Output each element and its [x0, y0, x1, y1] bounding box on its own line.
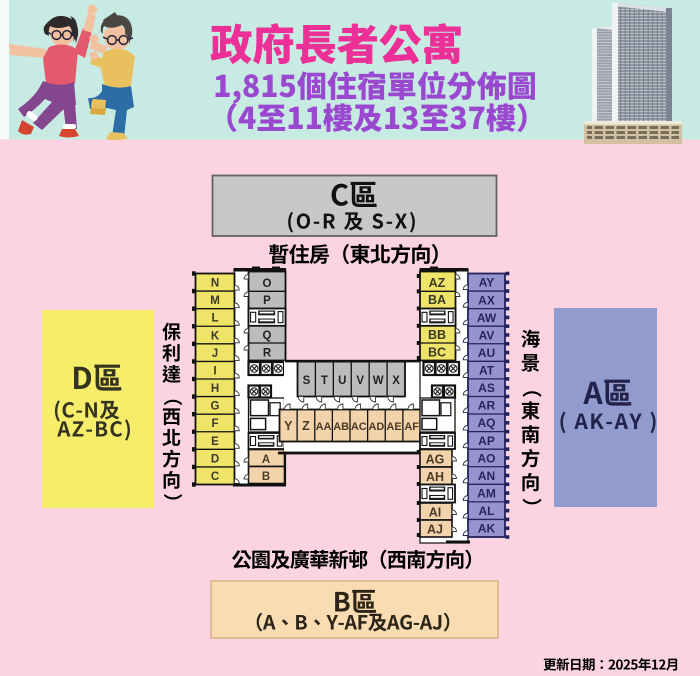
- svg-text:BB: BB: [428, 328, 446, 342]
- svg-text:AQ: AQ: [478, 416, 496, 430]
- svg-text:AV: AV: [479, 328, 495, 342]
- svg-text:K: K: [211, 330, 220, 342]
- svg-text:S: S: [303, 375, 311, 387]
- svg-text:BA: BA: [428, 293, 446, 307]
- svg-text:AS: AS: [478, 381, 495, 395]
- svg-text:E: E: [211, 436, 219, 448]
- svg-text:AO: AO: [478, 451, 496, 465]
- svg-text:AA: AA: [316, 421, 332, 433]
- svg-text:W: W: [373, 375, 384, 387]
- svg-text:U: U: [338, 375, 346, 387]
- svg-text:V: V: [356, 375, 364, 387]
- svg-text:AI: AI: [429, 506, 442, 520]
- svg-text:G: G: [211, 401, 220, 413]
- svg-text:AX: AX: [478, 293, 495, 307]
- svg-text:AY: AY: [479, 276, 495, 290]
- svg-text:Z: Z: [302, 419, 310, 433]
- svg-text:BC: BC: [428, 346, 446, 360]
- svg-text:I: I: [213, 365, 216, 377]
- svg-text:AH: AH: [426, 470, 444, 484]
- svg-text:X: X: [392, 375, 400, 387]
- svg-text:AB: AB: [333, 421, 349, 433]
- svg-text:AL: AL: [479, 504, 495, 518]
- svg-text:R: R: [263, 348, 272, 360]
- svg-text:M: M: [210, 295, 220, 307]
- svg-text:L: L: [211, 313, 218, 325]
- svg-text:AD: AD: [368, 421, 384, 433]
- svg-text:AP: AP: [478, 434, 495, 448]
- svg-text:P: P: [263, 295, 271, 307]
- svg-text:AE: AE: [386, 421, 401, 433]
- svg-text:AJ: AJ: [427, 523, 443, 537]
- svg-text:O: O: [263, 278, 272, 290]
- svg-text:AG: AG: [426, 453, 445, 467]
- svg-text:AK: AK: [478, 522, 496, 536]
- svg-text:D: D: [211, 453, 219, 465]
- svg-text:AW: AW: [477, 311, 497, 325]
- svg-text:N: N: [211, 278, 219, 290]
- svg-text:AF: AF: [404, 421, 419, 433]
- svg-text:Q: Q: [263, 330, 272, 342]
- svg-text:F: F: [211, 418, 218, 430]
- svg-text:AU: AU: [478, 346, 495, 360]
- svg-text:Y: Y: [284, 419, 293, 433]
- svg-text:B: B: [262, 471, 270, 483]
- svg-text:H: H: [211, 383, 219, 395]
- svg-text:C: C: [211, 471, 219, 483]
- svg-text:J: J: [212, 348, 218, 360]
- svg-text:A: A: [262, 454, 270, 466]
- svg-text:AZ: AZ: [429, 276, 446, 290]
- svg-text:AR: AR: [478, 399, 496, 413]
- svg-text:AN: AN: [478, 469, 495, 483]
- svg-text:T: T: [321, 375, 328, 387]
- svg-text:AC: AC: [351, 421, 367, 433]
- svg-text:AT: AT: [479, 364, 495, 378]
- svg-text:AM: AM: [477, 487, 496, 501]
